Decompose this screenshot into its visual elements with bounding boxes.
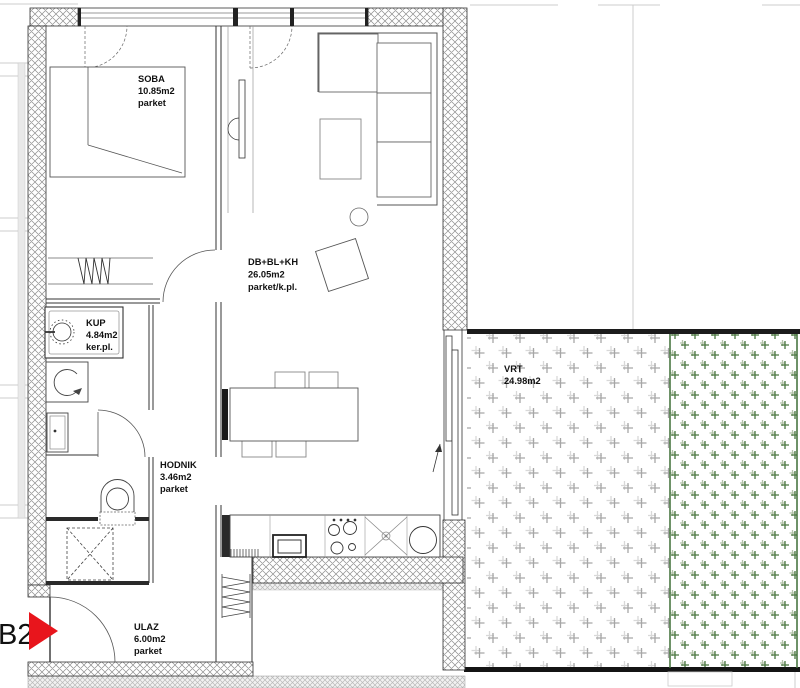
coffee-table (320, 119, 361, 179)
rug-symbol (316, 239, 369, 292)
wc-wall-2 (134, 517, 149, 521)
wc-wall (46, 517, 98, 521)
kitchen (230, 515, 440, 557)
wall-top-left (30, 8, 80, 26)
walkway-strip-lower (28, 676, 465, 688)
radiator-living (222, 389, 228, 440)
bedroom-door-arc (163, 250, 215, 302)
garden-gray-area (467, 334, 670, 668)
ulaz-top-wall (46, 581, 149, 585)
dining-table (230, 388, 358, 441)
floorplan-page: SOBA10.85m2parket DB+BL+KH26.05m2parket/… (0, 0, 800, 688)
wall-bottom (253, 557, 463, 583)
wall-right-upper (443, 8, 467, 330)
window-swing-right (250, 26, 292, 68)
radiator-ulaz (222, 574, 250, 618)
radiator-bedroom (78, 258, 110, 284)
window-swing-left (85, 26, 127, 68)
neighbour-wall-band (18, 63, 25, 518)
wall-ulaz-bottom (28, 662, 253, 676)
unit-label: B2 (0, 619, 33, 651)
bath-door-arc (98, 410, 145, 457)
unit-arrow-icon (29, 612, 58, 650)
sofa-seat-4 (377, 142, 431, 197)
floorplan-svg: SOBA10.85m2parket DB+BL+KH26.05m2parket/… (0, 0, 800, 688)
garden-sliding-door (433, 330, 462, 520)
dining-set (230, 372, 358, 457)
closet-symbol (67, 528, 113, 580)
garden-bottom-edge (464, 667, 800, 672)
washing-machine-symbol (46, 362, 88, 402)
door-jamb (28, 585, 50, 597)
sofa-seat-1 (319, 34, 378, 92)
wall-right-lower (443, 520, 465, 670)
kitchen-counter (230, 515, 440, 557)
kitchen-wall-end (222, 515, 230, 557)
wall-left (28, 26, 46, 585)
living-fixtures (222, 33, 437, 457)
sofa-seat-2 (377, 43, 431, 93)
garden-green-area (670, 334, 797, 668)
tv-unit (228, 26, 253, 213)
room-label-ulaz: ULAZ6.00m2parket (134, 622, 166, 656)
sofa-seat-3 (377, 93, 431, 142)
washbasin-symbol (53, 323, 71, 341)
tv-symbol (239, 80, 245, 158)
garden-top-edge (467, 329, 800, 334)
room-label-living: DB+BL+KH26.05m2parket/k.pl. (248, 257, 298, 292)
walkway-strip-upper (253, 583, 464, 590)
room-label-hodnik: HODNIK3.46m2parket (160, 460, 197, 494)
garden-step (668, 672, 732, 686)
entry-door-arc (50, 597, 115, 662)
plant-symbol (350, 208, 368, 226)
